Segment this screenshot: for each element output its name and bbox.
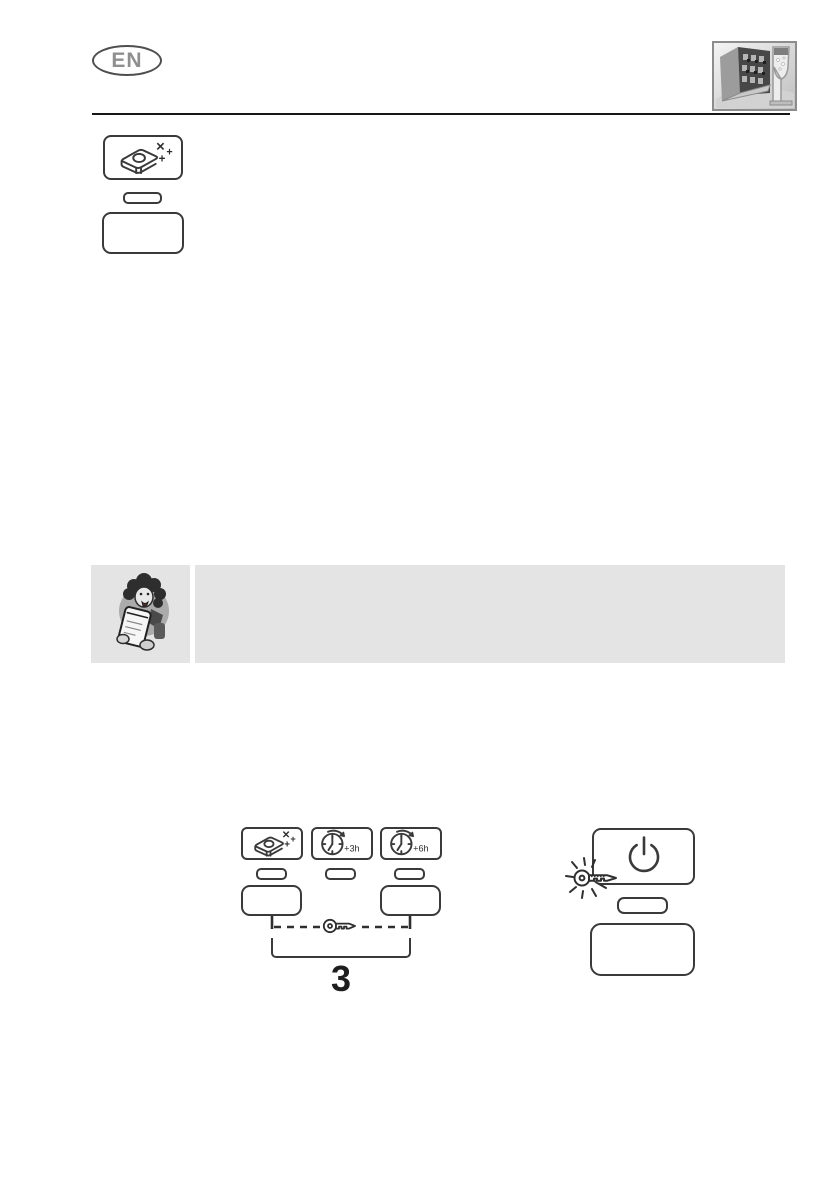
extra-dry-option-symbol: ✕ + + [103,135,183,180]
panel-led-delay-3h [325,868,356,880]
note-icon-cell [91,565,190,663]
combination-bracket [271,938,411,958]
dishwasher-photo [712,41,797,111]
hold-seconds-label: 3 [271,958,411,1000]
button-combination-connector [266,913,416,939]
key-icon [324,920,355,932]
svg-text:+: + [166,147,172,159]
option-button [102,212,184,254]
delay-6h-label: +6h [413,844,428,854]
dishwasher-with-glass-image [712,41,797,111]
svg-text:+: + [159,152,166,165]
panel-led-extra-dry [256,868,287,880]
manual-page: EN [0,0,840,1190]
panel-button-right [380,885,441,916]
assistant-woman-icon [107,571,175,657]
svg-text:+: + [284,839,290,850]
note-text-cell [195,565,785,663]
header-divider [92,113,790,115]
detergent-tablet-icon: ✕ + + [110,139,176,176]
language-badge: EN [92,45,162,76]
panel-led-delay-6h [394,868,425,880]
panel-option-symbol-delay-3h: +3h [311,827,373,860]
clock-delay-3h-icon: +3h [314,829,370,858]
panel-option-symbol-delay-6h: +6h [380,827,442,860]
delay-3h-label: +3h [344,844,359,854]
svg-text:+: + [290,834,295,844]
clock-delay-6h-icon: +6h [383,829,439,858]
power-icon [623,835,665,879]
power-button [590,923,695,976]
panel-option-symbol-extra-dry: ✕ + + [241,827,303,860]
key-with-rays-icon [564,854,628,902]
dashed-link-with-key [266,913,416,939]
language-badge-label: EN [111,49,142,73]
power-led [617,897,668,914]
option-led [123,192,162,204]
key-shine-icon [564,854,628,902]
detergent-tablet-icon: ✕ + + [245,829,299,858]
panel-button-left [241,885,302,916]
